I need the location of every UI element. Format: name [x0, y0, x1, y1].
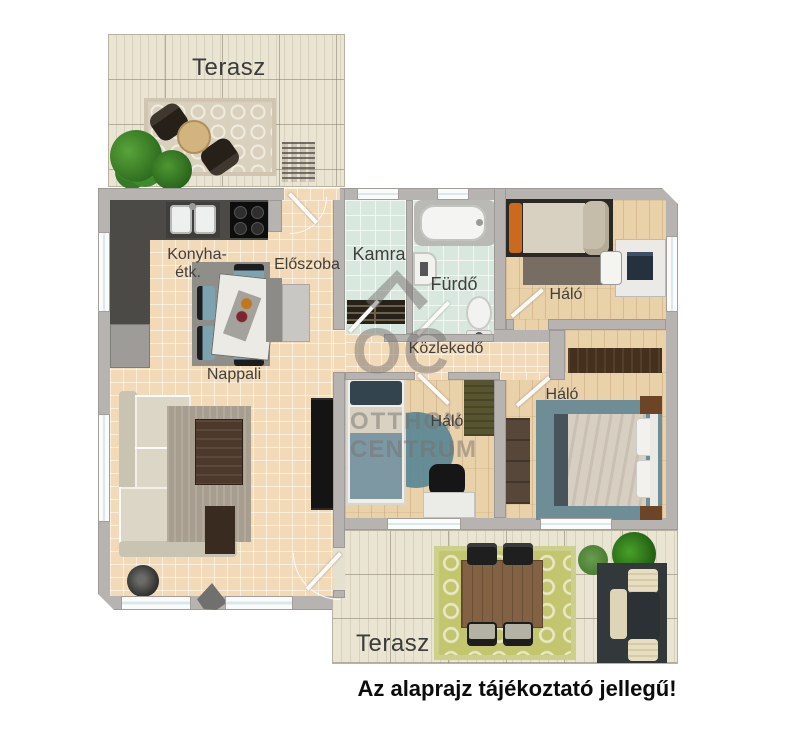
entry-closet	[266, 278, 282, 342]
window	[225, 596, 293, 610]
cooktop	[230, 202, 268, 238]
window	[437, 188, 469, 200]
window	[540, 518, 612, 530]
wall	[448, 372, 500, 380]
kitchen-label-line1: Konyha-	[167, 246, 227, 264]
terrace-bottom-label: Terasz	[356, 630, 430, 658]
blanket	[583, 201, 609, 255]
coffee-table	[195, 419, 243, 485]
lounge-cushion	[628, 569, 658, 593]
burner	[251, 206, 264, 219]
bathroom-label: Fürdő	[430, 274, 477, 295]
wardrobe	[464, 378, 498, 436]
burner	[234, 222, 247, 235]
nightstand	[640, 506, 662, 520]
desk	[423, 492, 475, 518]
bedroom-middle-label: Háló	[431, 413, 464, 431]
blanket-edge	[554, 414, 568, 506]
lounge-cushion	[628, 639, 658, 661]
wall	[506, 319, 514, 330]
wall	[494, 188, 506, 330]
doorway-floor	[512, 319, 548, 330]
headboard	[650, 414, 658, 506]
bed-single	[505, 199, 613, 257]
watermark-brand-line2: CENTRUM	[350, 436, 450, 464]
bedroom-right-label: Háló	[546, 386, 579, 404]
pantry-label: Kamra	[352, 244, 405, 265]
terrace-chair	[467, 622, 497, 646]
floorplan-image: Terasz Terasz	[0, 0, 800, 749]
tv-console	[311, 398, 335, 510]
dresser	[506, 418, 530, 504]
wall	[548, 319, 666, 330]
kitchen-sink	[166, 202, 220, 238]
disclaimer-text: Az alaprajz tájékoztató jellegű!	[352, 676, 682, 702]
sink-drain	[420, 262, 428, 276]
pouf	[127, 565, 159, 597]
burner	[251, 222, 264, 235]
burner	[234, 206, 247, 219]
bed-double	[554, 414, 646, 506]
serving-tray	[223, 290, 261, 341]
window	[98, 414, 110, 522]
lounge-chair	[626, 592, 660, 640]
terrace-fineprint-graphic	[282, 142, 315, 182]
window	[357, 188, 399, 200]
toilet	[466, 296, 492, 330]
entry-wall-stub	[268, 200, 282, 232]
entry-hall-label: Előszoba	[274, 256, 340, 274]
bedroom-top-label: Háló	[550, 286, 583, 304]
lounge-side-cushion	[610, 589, 627, 639]
desk-chair	[600, 251, 622, 285]
passage-floor	[333, 330, 345, 372]
wall	[333, 372, 345, 548]
terrace-chair	[467, 543, 497, 565]
wall	[549, 330, 565, 380]
wall	[494, 380, 506, 518]
fridge	[110, 324, 150, 368]
bathtub-drain	[476, 219, 483, 226]
window	[121, 596, 191, 610]
terrace-chair	[503, 543, 533, 565]
side-table	[205, 506, 235, 554]
bathtub	[414, 200, 496, 246]
dining-chair	[197, 286, 215, 320]
window	[387, 518, 461, 530]
sink-basin	[194, 205, 216, 234]
wardrobe	[568, 348, 662, 373]
monitor	[627, 252, 653, 280]
entry-sideboard	[282, 284, 310, 342]
kitchen-label-line2: étk.	[175, 264, 201, 282]
window	[666, 236, 678, 312]
pillow	[509, 203, 522, 253]
terrace-dining-table	[461, 560, 543, 628]
terrace-top-table	[177, 120, 211, 154]
doorway-floor	[500, 372, 549, 380]
corridor-label: Közlekedő	[409, 340, 484, 358]
plant	[152, 150, 192, 190]
mattress	[523, 203, 585, 253]
bedroom-rug	[523, 257, 603, 285]
terrace-chair	[503, 622, 533, 646]
terrace-top-label: Terasz	[192, 54, 266, 82]
living-room-label: Nappali	[207, 366, 261, 384]
nightstand	[640, 396, 662, 414]
faucet	[189, 203, 196, 210]
window	[98, 232, 110, 312]
kitchen-counter	[110, 240, 150, 324]
sink-basin	[170, 205, 192, 234]
